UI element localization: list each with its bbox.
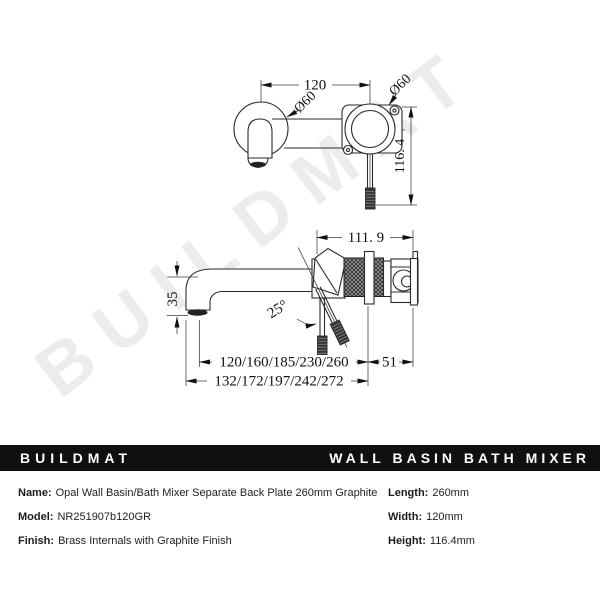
spec-row-finish: Finish:Brass Internals with Graphite Fin… <box>18 535 388 547</box>
dim-handle-offset: 51 <box>368 355 413 371</box>
product-title: WALL BASIN BATH MIXER <box>329 450 590 466</box>
svg-text:120/160/185/230/260: 120/160/185/230/260 <box>219 355 348 371</box>
svg-text:35: 35 <box>165 292 181 307</box>
spec-row-length: Length:260mm <box>388 487 590 499</box>
mixer-body-side <box>344 252 418 306</box>
dim-handle-angle: 25° <box>265 297 316 324</box>
spec-row-name: Name:Opal Wall Basin/Bath Mixer Separate… <box>18 487 388 499</box>
svg-text:25°: 25° <box>265 297 291 322</box>
brand-logo: BUILDMAT <box>20 450 132 466</box>
wall-bracket <box>411 259 418 306</box>
title-banner: BUILDMAT WALL BASIN BATH MIXER <box>0 445 600 471</box>
technical-drawing: BUILDMAT 120 <box>0 0 600 445</box>
spout-outlet-front <box>250 162 266 167</box>
spec-row-height: Height:116.4mm <box>388 535 590 547</box>
handle-grip-front <box>366 188 376 209</box>
spec-column-left: Name:Opal Wall Basin/Bath Mixer Separate… <box>18 487 388 559</box>
dim-overall-projection: 132/172/197/242/272 <box>186 374 368 390</box>
dim-front-width: 120 <box>261 78 370 94</box>
spec-row-model: Model:NR251907b120GR <box>18 511 388 523</box>
spout-outlet-side <box>188 309 208 315</box>
handle-vertical <box>318 298 328 358</box>
wall-flange <box>365 252 375 305</box>
spout-front <box>248 119 272 158</box>
spout-side <box>186 269 320 310</box>
svg-text:51: 51 <box>382 355 397 371</box>
svg-text:116. 4: 116. 4 <box>393 139 408 173</box>
spec-row-width: Width:120mm <box>388 511 590 523</box>
dim-spout-projection: 120/160/185/230/260 <box>200 355 369 371</box>
spec-column-right: Length:260mm Width:120mm Height:116.4mm <box>388 487 590 559</box>
svg-text:111. 9: 111. 9 <box>348 230 384 246</box>
spec-table: Name:Opal Wall Basin/Bath Mixer Separate… <box>0 471 600 559</box>
svg-text:132/172/197/242/272: 132/172/197/242/272 <box>214 374 343 390</box>
product-spec-sheet: BUILDMAT 120 <box>0 0 600 600</box>
